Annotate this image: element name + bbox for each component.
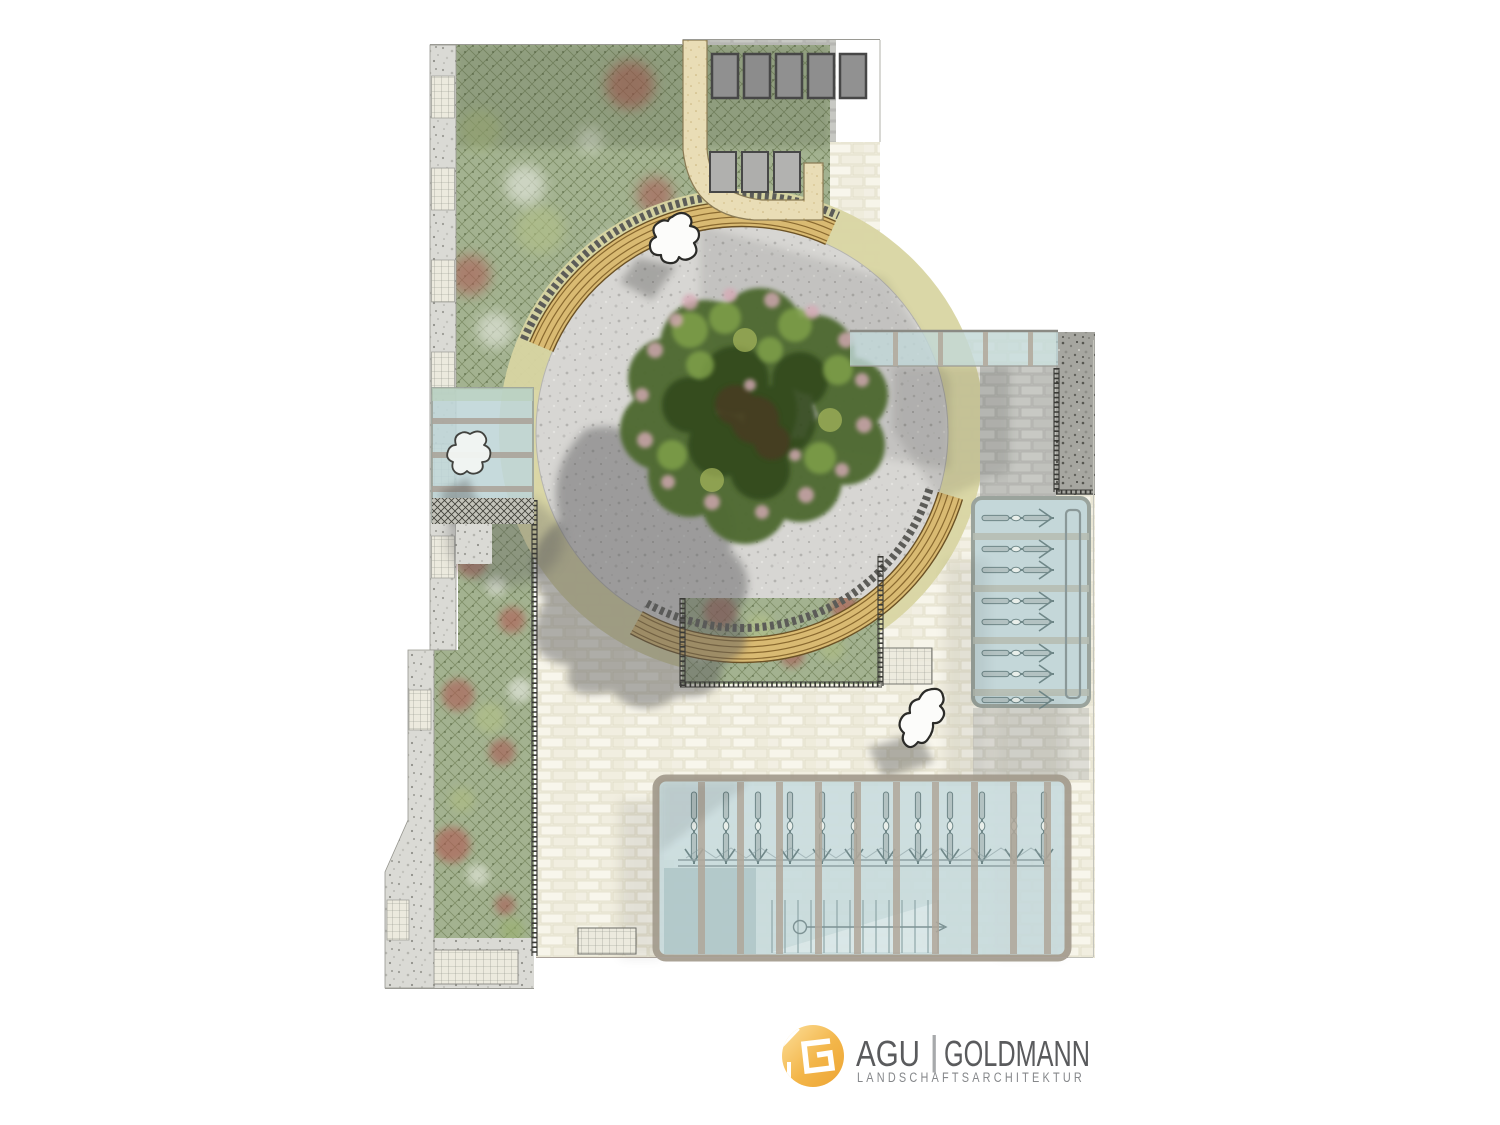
seat-blocks-dark [712,54,866,98]
logo-divider: | [929,1029,939,1073]
logo-text: AGU | GOLDMANN LANDSCHAFTSARCHITEKTUR [856,1029,1090,1085]
glass-canopy-east [850,331,1058,366]
bike-parking-east [973,498,1089,709]
gravel-strip-east [1054,332,1095,495]
site-plan: AGU | GOLDMANN LANDSCHAFTSARCHITEKTUR [0,0,1500,1125]
logo-name: GOLDMANN [944,1033,1090,1074]
logo-mark [778,1025,844,1087]
grate-band [432,498,534,524]
logo: AGU | GOLDMANN LANDSCHAFTSARCHITEKTUR [778,1025,1090,1087]
logo-brand: AGU [856,1033,920,1074]
drain-grate [578,928,636,954]
page: AGU | GOLDMANN LANDSCHAFTSARCHITEKTUR [0,0,1500,1125]
seat-blocks-light [710,152,800,192]
bike-shelter-south [620,778,1068,958]
logo-subtitle: LANDSCHAFTSARCHITEKTUR [857,1070,1085,1085]
concrete-pocket [456,524,492,564]
soft-shadow-band [945,560,987,785]
